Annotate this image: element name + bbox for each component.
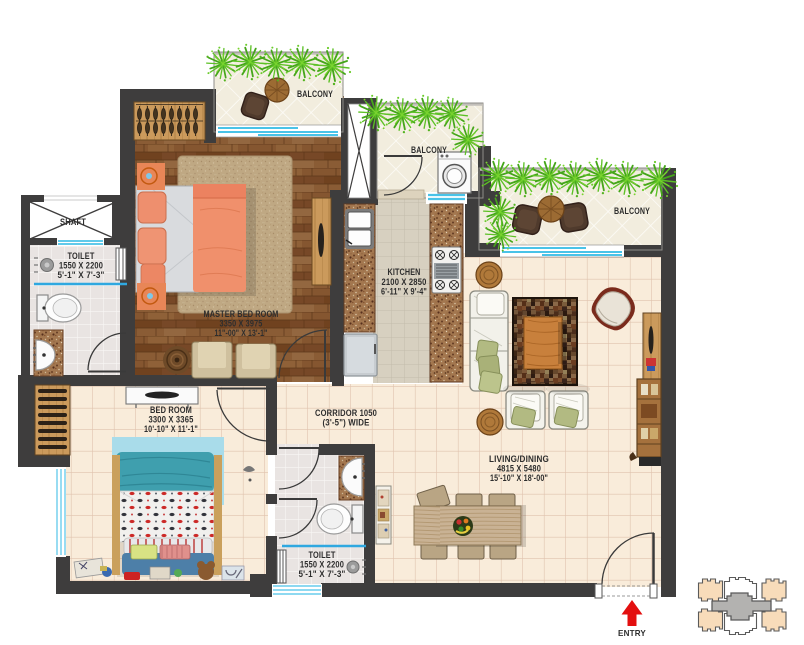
svg-text:ENTRY: ENTRY	[618, 629, 646, 638]
svg-text:(3'-5") WIDE: (3'-5") WIDE	[323, 418, 370, 429]
svg-text:BALCONY: BALCONY	[297, 89, 333, 100]
svg-text:SHAFT: SHAFT	[60, 217, 86, 228]
svg-text:6'-11" X 9'-4": 6'-11" X 9'-4"	[381, 287, 427, 298]
svg-text:BALCONY: BALCONY	[614, 206, 650, 217]
svg-text:5'-1" X 7'-3": 5'-1" X 7'-3"	[58, 270, 105, 281]
svg-text:15'-10" X 18'-00": 15'-10" X 18'-00"	[490, 473, 548, 484]
svg-text:11"-00" X 13'-1": 11"-00" X 13'-1"	[215, 328, 268, 339]
svg-text:10'-10" X 11'-1": 10'-10" X 11'-1"	[144, 424, 198, 435]
svg-text:BALCONY: BALCONY	[411, 145, 447, 156]
svg-text:5'-1" X 7'-3": 5'-1" X 7'-3"	[299, 569, 346, 580]
